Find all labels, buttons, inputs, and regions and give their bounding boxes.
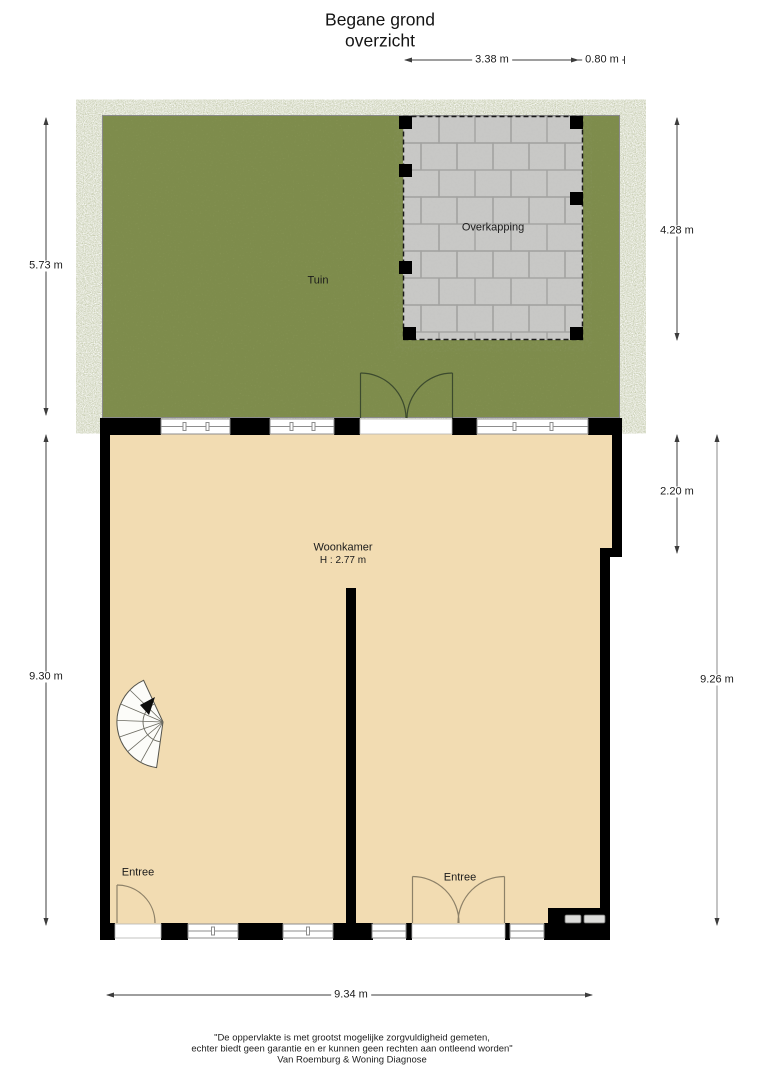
dim-label-overkapping-width: 3.38 m — [472, 55, 512, 66]
window — [283, 924, 333, 938]
window — [477, 419, 588, 434]
page-title: Begane grond — [325, 11, 435, 29]
room-label-woonkamer: Woonkamer — [313, 543, 372, 554]
room-label-tuin: Tuin — [308, 276, 329, 287]
room-label-entree-left: Entree — [122, 868, 154, 879]
page-subtitle: overzicht — [345, 32, 415, 50]
floor-plan-drawing — [0, 0, 764, 1080]
dim-label-house-width: 9.34 m — [331, 990, 371, 1001]
window — [270, 419, 334, 434]
entree-left-door-opening — [115, 924, 161, 938]
dim-label-tuin-depth: 5.73 m — [26, 261, 66, 272]
dim-label-overkapping-depth: 4.28 m — [657, 226, 697, 237]
room-label-entree-right: Entree — [444, 873, 476, 884]
windows-top — [161, 419, 588, 434]
dim-label-upper-depth: 2.20 m — [657, 487, 697, 498]
entree-right-door-opening — [412, 924, 505, 938]
garden-door-opening — [360, 419, 452, 434]
window — [161, 419, 230, 434]
footer-disclaimer-line1: "De oppervlakte is met grootst mogelijke… — [214, 1033, 490, 1043]
meter-fixtures — [565, 915, 605, 923]
corner-block — [548, 908, 610, 940]
window — [188, 924, 238, 938]
dim-label-right-depth: 9.26 m — [697, 675, 737, 686]
ceiling-height-label: H : 2.77 m — [320, 556, 366, 566]
house-floor — [110, 420, 612, 925]
dim-label-left-depth: 9.30 m — [26, 672, 66, 683]
floor-plan-page: Begane grond overzicht Tuin Overkapping … — [0, 0, 764, 1080]
interior-wall — [346, 588, 356, 923]
room-label-overkapping: Overkapping — [462, 223, 524, 234]
footer-disclaimer-line2: echter biedt geen garantie en er kunnen … — [191, 1044, 512, 1054]
footer-company: Van Roemburg & Woning Diagnose — [277, 1055, 427, 1065]
window — [510, 924, 544, 938]
dim-label-side-strip: 0.80 m — [582, 55, 622, 66]
window — [372, 924, 406, 938]
